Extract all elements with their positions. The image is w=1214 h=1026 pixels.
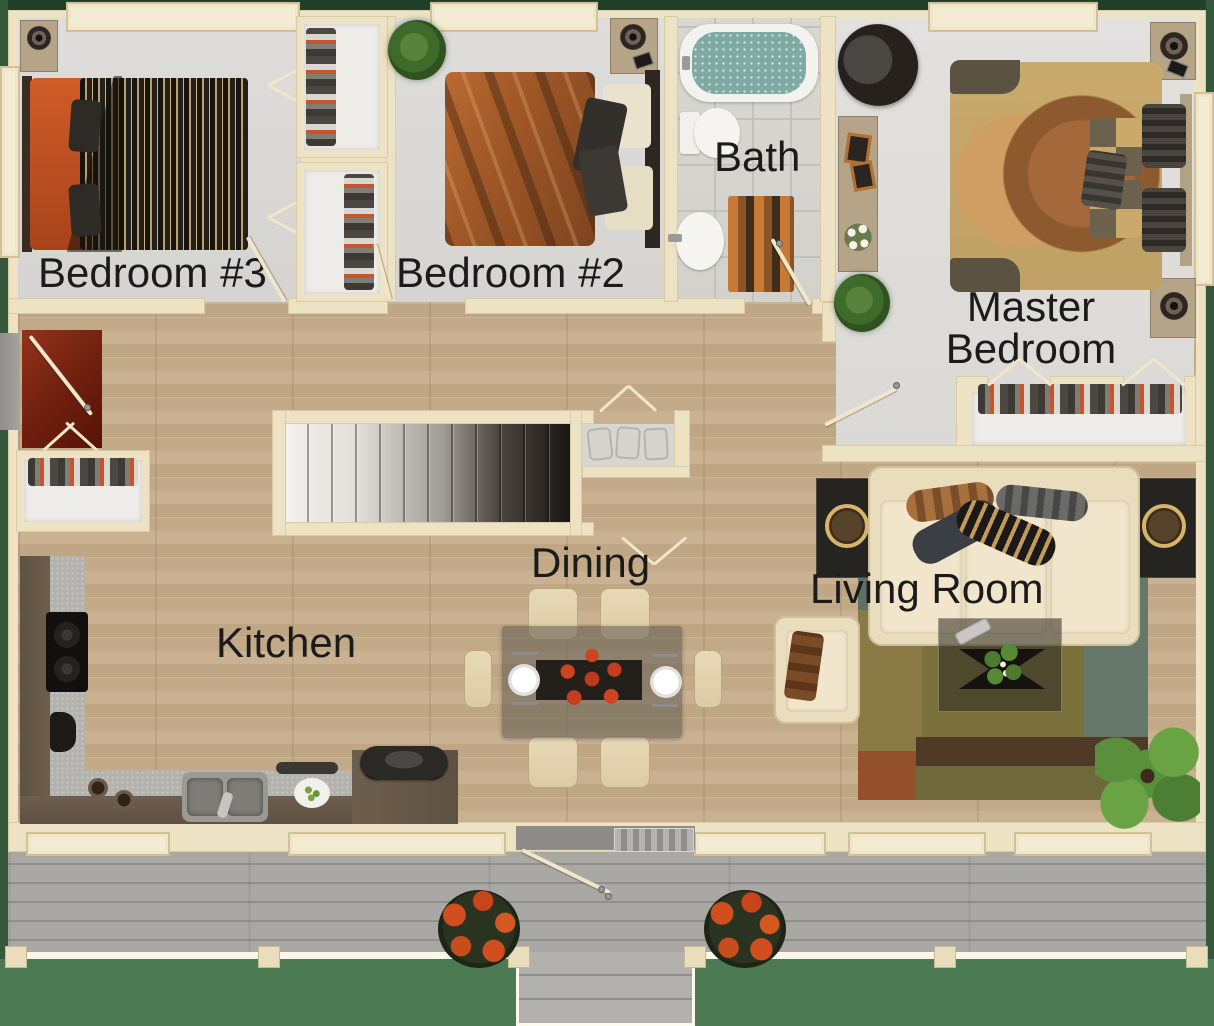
room-label-master-bedroom: Master Bedroom: [928, 286, 1134, 370]
room-label-living-room: Living Room: [810, 568, 1043, 610]
shoes-row: [344, 174, 374, 290]
closet: [296, 162, 388, 302]
entry-closet: [16, 450, 150, 532]
bathtub-faucet: [682, 56, 690, 70]
flower-vase: [842, 220, 874, 256]
window: [848, 832, 986, 856]
stair-wall: [272, 522, 594, 536]
closet: [296, 16, 388, 158]
coffee-maker: [50, 712, 76, 752]
wall: [465, 298, 745, 314]
floor-plan: Bedroom #3 Bedroom #2 Bath: [0, 0, 1214, 1026]
palm-plant: [1095, 722, 1200, 830]
dining-chair: [694, 650, 722, 708]
wall: [822, 445, 1206, 462]
flower-pot: [438, 890, 520, 968]
room-label-kitchen: Kitchen: [216, 622, 356, 664]
wall: [8, 298, 205, 314]
window: [928, 2, 1098, 32]
armchair: [774, 616, 860, 724]
bowl: [88, 778, 108, 798]
room-label-bath: Bath: [714, 136, 800, 178]
window: [694, 832, 826, 856]
roasting-pan: [360, 746, 448, 780]
window: [430, 2, 598, 32]
burner: [54, 622, 80, 648]
table-clock: [1142, 504, 1186, 548]
master-plant: [834, 274, 890, 332]
step-edge: [519, 998, 692, 1000]
window: [1194, 92, 1214, 286]
front-door-mat: [614, 828, 694, 852]
dining-chair: [464, 650, 492, 708]
table-clock: [825, 504, 869, 548]
picture-frame: [850, 160, 877, 191]
window: [66, 2, 300, 32]
master-speaker-top: [1160, 32, 1188, 60]
bedroom3-bed: [22, 76, 248, 252]
kitchen-cabinet-left: [20, 556, 50, 824]
pillow-striped: [1142, 188, 1186, 252]
railing-post: [5, 946, 27, 968]
stair-wall: [570, 410, 582, 536]
wall: [664, 16, 678, 302]
coffee-table: [938, 618, 1062, 712]
pillow-striped: [1080, 149, 1127, 210]
pillow: [68, 99, 102, 153]
deck: [8, 848, 1206, 958]
kitchen-sink: [182, 772, 268, 822]
sink-faucet: [668, 234, 682, 242]
master-speaker-bottom: [1160, 292, 1188, 320]
window: [0, 66, 20, 258]
cooktop: [46, 612, 88, 692]
tray-lid: [276, 762, 338, 774]
food-plate: [294, 778, 330, 808]
room-label-bedroom3: Bedroom #3: [38, 252, 267, 294]
shoes-row: [978, 384, 1182, 414]
staircase: [286, 424, 570, 522]
cutlery: [652, 654, 678, 657]
bedroom2-plant: [388, 20, 446, 80]
shoes-row: [306, 28, 336, 146]
bowl: [114, 790, 134, 810]
bedroom2-bed: [445, 68, 660, 250]
window: [1014, 832, 1152, 856]
master-bed: [950, 60, 1192, 292]
table-plant: [977, 641, 1029, 693]
stair-closet-wall: [582, 466, 690, 478]
duvet-corner: [950, 60, 1020, 94]
bathtub: [680, 24, 818, 102]
front-steps: [516, 952, 695, 1026]
basket: [615, 426, 641, 460]
duvet-patterned: [445, 72, 595, 246]
railing-post: [684, 946, 706, 968]
wall: [820, 16, 836, 302]
burner: [54, 656, 80, 682]
front-door-handle: [598, 886, 605, 893]
room-label-dining: Dining: [531, 542, 650, 584]
place-setting-plate: [650, 666, 682, 698]
cutlery: [652, 704, 678, 707]
place-setting-plate: [508, 664, 540, 696]
bedroom2-speaker: [620, 24, 646, 50]
dining-chair: [528, 736, 578, 788]
bath-sink: [676, 212, 724, 270]
railing-post: [258, 946, 280, 968]
flower-centerpiece: [560, 648, 624, 710]
bath-door-handle: [776, 240, 783, 247]
master-door-handle: [893, 382, 900, 389]
railing-post: [934, 946, 956, 968]
window: [288, 832, 506, 856]
front-door-handle: [605, 893, 612, 900]
cutlery: [512, 702, 538, 705]
flower-pot: [704, 890, 786, 968]
bath-mat: [728, 196, 794, 292]
cutlery: [512, 652, 538, 655]
entry-landing: [0, 333, 20, 430]
stair-wall: [272, 410, 594, 424]
stair-wall: [272, 410, 286, 536]
basket: [643, 427, 669, 460]
pillow-striped: [1142, 104, 1186, 168]
railing-post: [1186, 946, 1208, 968]
master-console-table: [838, 116, 878, 272]
duvet: [950, 62, 1162, 290]
room-label-bedroom2: Bedroom #2: [396, 252, 625, 294]
step-edge: [519, 974, 692, 976]
rug-patch: [858, 751, 916, 800]
window: [26, 832, 170, 856]
dining-chair: [600, 736, 650, 788]
bedroom3-speaker: [27, 26, 51, 50]
pillow: [68, 183, 102, 237]
shoes-row: [28, 458, 138, 486]
basket: [586, 427, 613, 461]
side-table: [1132, 478, 1196, 578]
bathtub-water: [692, 32, 806, 94]
entry-door-handle: [84, 404, 91, 411]
